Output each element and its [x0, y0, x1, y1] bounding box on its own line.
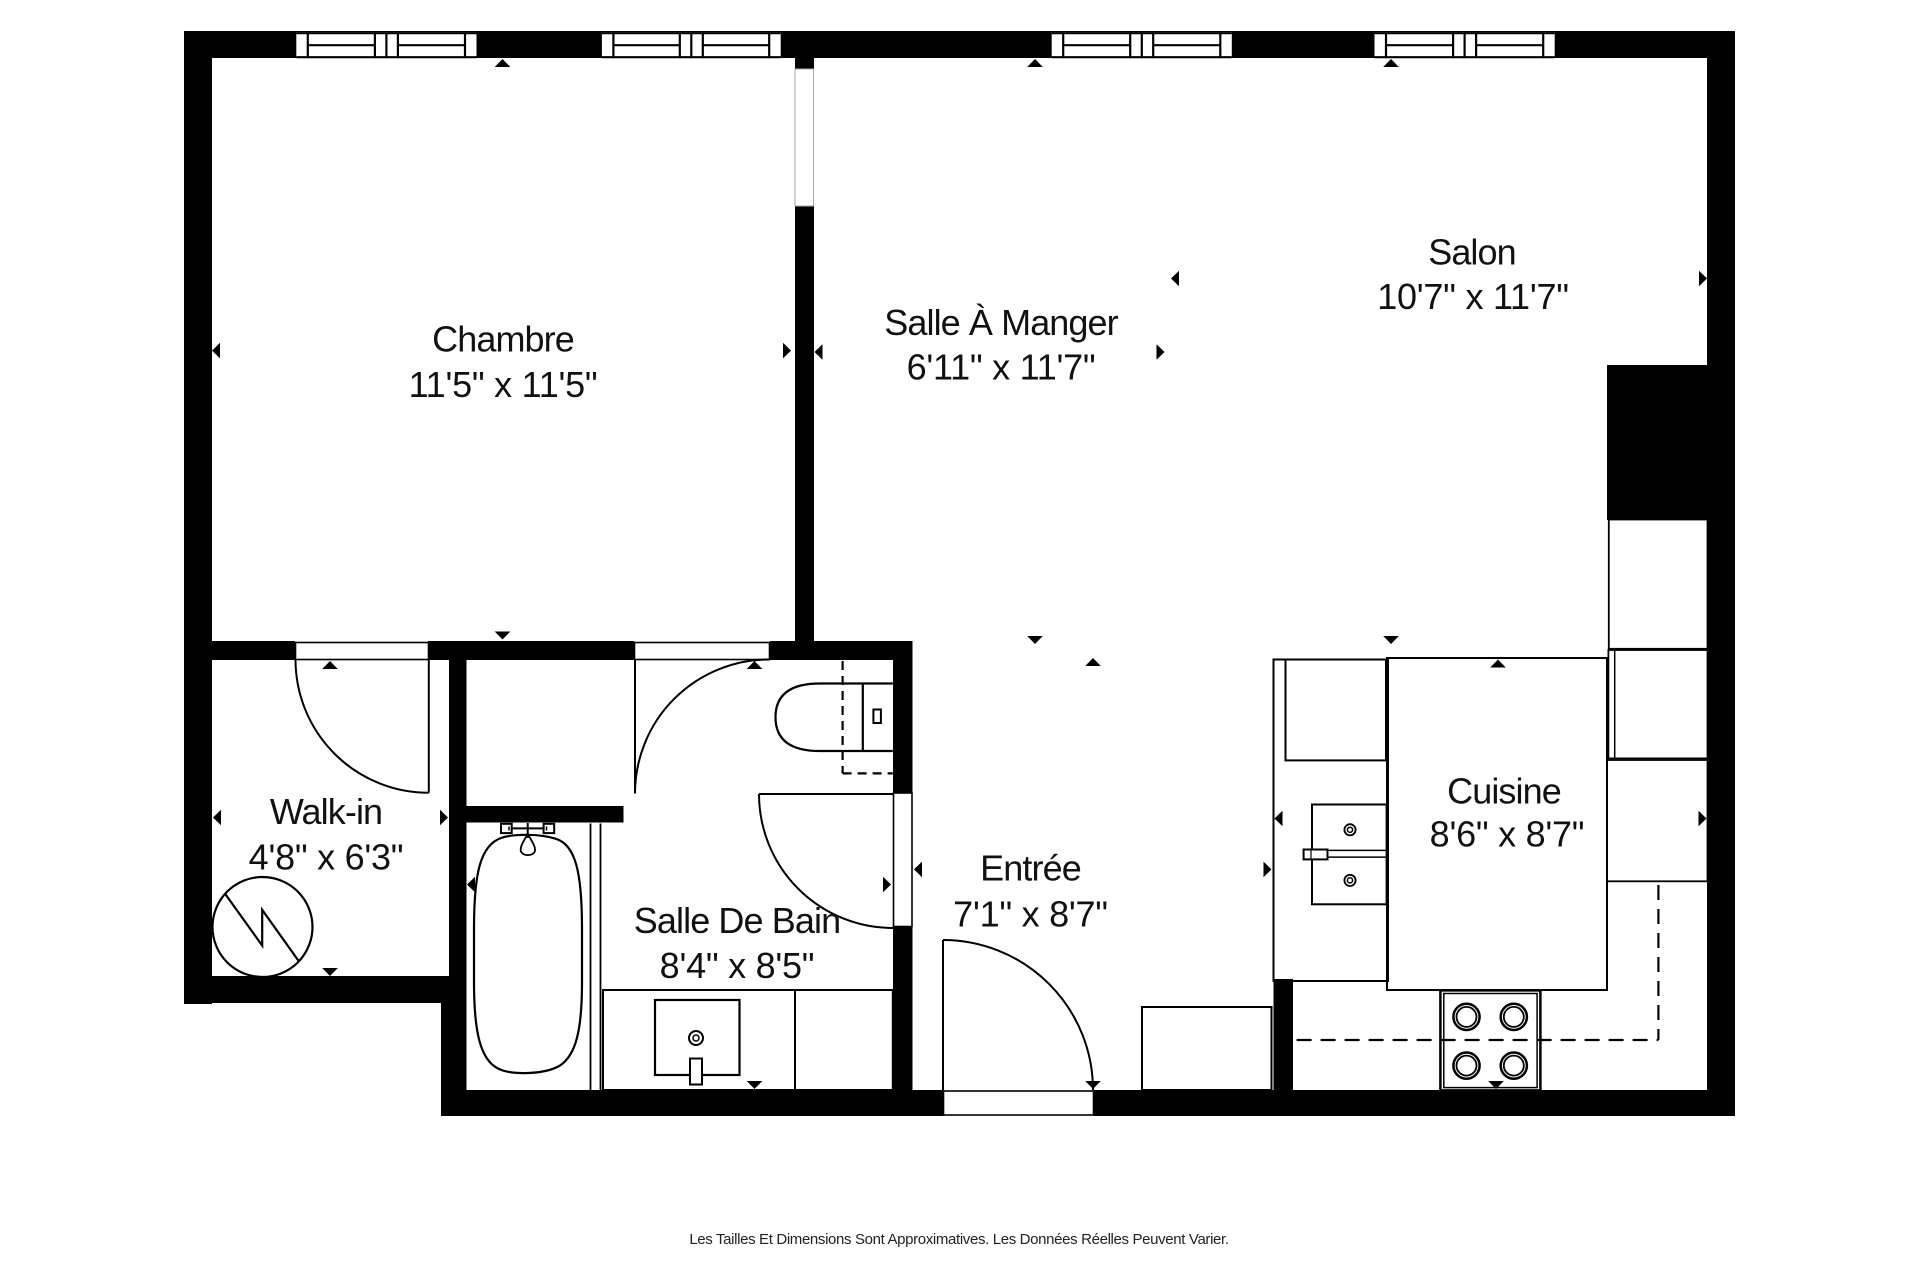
- svg-text:Salle À Manger: Salle À Manger: [884, 302, 1118, 343]
- svg-text:8'6" x 8'7": 8'6" x 8'7": [1430, 814, 1585, 855]
- svg-text:Chambre: Chambre: [432, 319, 574, 360]
- svg-text:Cuisine: Cuisine: [1447, 771, 1561, 812]
- svg-text:Les Tailles Et Dimensions Sont: Les Tailles Et Dimensions Sont Approxima…: [689, 1231, 1228, 1248]
- svg-text:6'11" x 11'7": 6'11" x 11'7": [907, 346, 1096, 387]
- svg-text:Walk-in: Walk-in: [270, 791, 382, 832]
- svg-text:4'8" x 6'3": 4'8" x 6'3": [249, 837, 404, 878]
- svg-text:Salle De Bain: Salle De Bain: [634, 900, 840, 941]
- svg-text:8'4" x 8'5": 8'4" x 8'5": [660, 945, 815, 986]
- svg-text:Entrée: Entrée: [980, 847, 1081, 888]
- svg-text:11'5" x 11'5": 11'5" x 11'5": [409, 364, 598, 405]
- svg-text:Salon: Salon: [1428, 231, 1516, 272]
- svg-text:7'1" x 8'7": 7'1" x 8'7": [953, 893, 1108, 934]
- svg-text:10'7" x 11'7": 10'7" x 11'7": [1377, 276, 1569, 317]
